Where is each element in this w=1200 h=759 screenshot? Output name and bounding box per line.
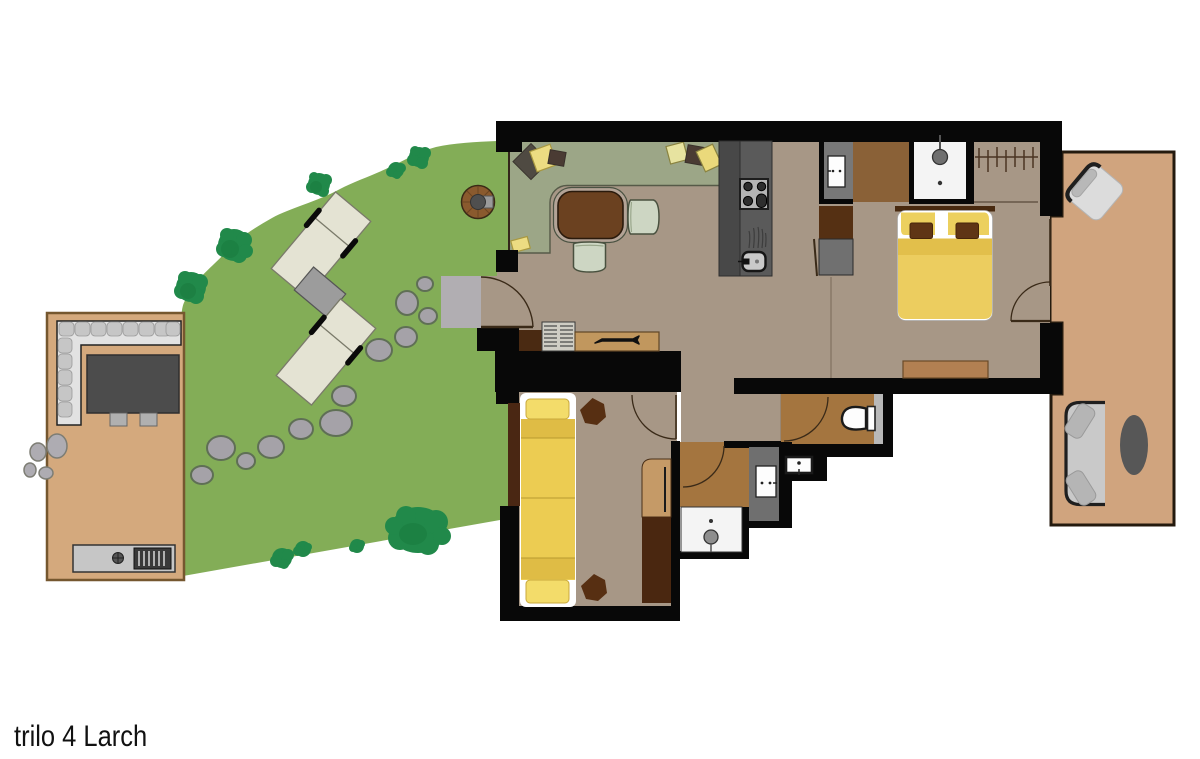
- svg-text:trilo 4 Larch: trilo 4 Larch: [14, 719, 147, 752]
